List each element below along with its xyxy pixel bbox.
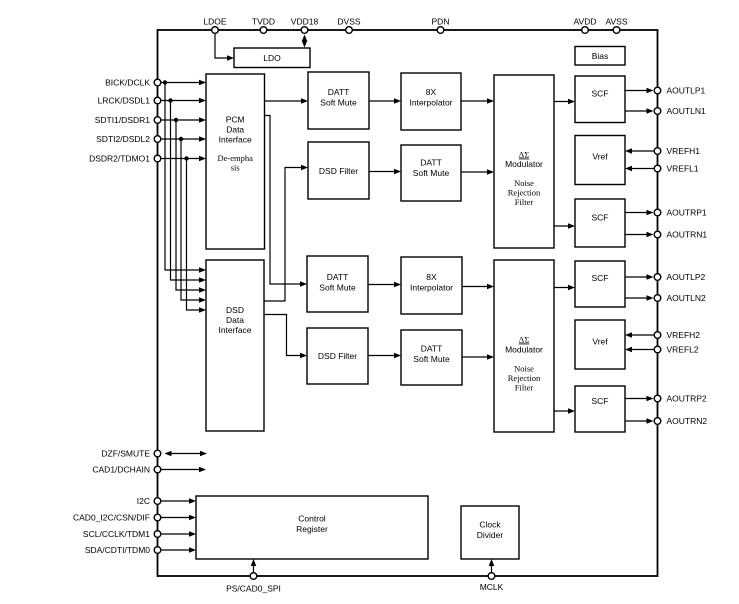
svg-text:DSD Filter: DSD Filter	[318, 351, 357, 361]
svg-text:PDN: PDN	[432, 17, 450, 27]
svg-text:AOUTRN2: AOUTRN2	[667, 416, 708, 426]
svg-text:Interface: Interface	[219, 135, 252, 145]
svg-text:CAD1/DCHAIN: CAD1/DCHAIN	[92, 465, 150, 475]
svg-text:AVDD: AVDD	[574, 17, 597, 27]
svg-text:Interpolator: Interpolator	[410, 98, 453, 108]
svg-text:VREFL1: VREFL1	[667, 164, 699, 174]
svg-text:LRCK/DSDL1: LRCK/DSDL1	[98, 96, 151, 106]
svg-text:AOUTRP2: AOUTRP2	[667, 394, 707, 404]
svg-text:ΔΣ: ΔΣ	[519, 335, 529, 345]
svg-text:I2C: I2C	[137, 496, 150, 506]
svg-text:DATT: DATT	[421, 344, 443, 354]
svg-text:Divider: Divider	[477, 530, 504, 540]
svg-text:MCLK: MCLK	[480, 582, 504, 592]
svg-text:DZF/SMUTE: DZF/SMUTE	[101, 449, 150, 459]
svg-text:SCF: SCF	[592, 273, 609, 283]
svg-text:VREFL2: VREFL2	[667, 345, 699, 355]
svg-text:Data: Data	[226, 125, 244, 135]
svg-text:AOUTRN1: AOUTRN1	[667, 230, 708, 240]
svg-text:PS/CAD0_SPI: PS/CAD0_SPI	[226, 584, 281, 594]
svg-text:Rejection: Rejection	[508, 373, 541, 383]
svg-text:Register: Register	[296, 524, 328, 534]
svg-text:AOUTRP1: AOUTRP1	[667, 208, 707, 218]
svg-text:Interface: Interface	[218, 325, 251, 335]
svg-text:Rejection: Rejection	[508, 187, 541, 197]
svg-text:DATT: DATT	[327, 272, 349, 282]
svg-text:ΔΣ: ΔΣ	[519, 150, 529, 160]
svg-text:SCF: SCF	[592, 396, 609, 406]
svg-text:Soft Mute: Soft Mute	[413, 168, 450, 178]
svg-text:SCL/CCLK/TDM1: SCL/CCLK/TDM1	[83, 529, 150, 539]
svg-text:DSDR2/TDMO1: DSDR2/TDMO1	[89, 154, 150, 164]
svg-text:TVDD: TVDD	[252, 17, 275, 27]
svg-text:VDD18: VDD18	[291, 17, 319, 27]
svg-text:Data: Data	[226, 315, 244, 325]
svg-text:Modulator: Modulator	[505, 159, 543, 169]
svg-text:DATT: DATT	[328, 87, 350, 97]
svg-text:Modulator: Modulator	[505, 344, 543, 354]
svg-text:Vref: Vref	[592, 152, 608, 162]
svg-text:SDA/CDTI/TDM0: SDA/CDTI/TDM0	[85, 545, 150, 555]
svg-text:De-empha: De-empha	[217, 153, 253, 163]
svg-text:Filter: Filter	[515, 197, 534, 207]
svg-text:SDTI2/DSDL2: SDTI2/DSDL2	[96, 134, 150, 144]
svg-text:Control: Control	[298, 514, 326, 524]
svg-text:DSD Filter: DSD Filter	[319, 166, 358, 176]
svg-text:PCM: PCM	[226, 115, 245, 125]
svg-text:Soft Mute: Soft Mute	[413, 354, 450, 364]
svg-text:LDOE: LDOE	[203, 17, 226, 27]
svg-text:AOUTLP2: AOUTLP2	[667, 272, 706, 282]
svg-text:Clock: Clock	[479, 520, 501, 530]
svg-text:Soft Mute: Soft Mute	[320, 98, 357, 108]
svg-text:DATT: DATT	[420, 158, 442, 168]
svg-text:AOUTLN2: AOUTLN2	[667, 293, 706, 303]
svg-text:VREFH1: VREFH1	[667, 146, 701, 156]
svg-text:sis: sis	[231, 163, 240, 173]
svg-text:LDO: LDO	[263, 53, 281, 63]
svg-text:Vref: Vref	[592, 337, 608, 347]
svg-text:DVSS: DVSS	[337, 17, 360, 27]
svg-text:SCF: SCF	[592, 213, 609, 223]
svg-text:SDTI1/DSDR1: SDTI1/DSDR1	[95, 115, 151, 125]
svg-text:DSD: DSD	[226, 305, 244, 315]
svg-text:AOUTLP1: AOUTLP1	[667, 86, 706, 96]
svg-text:8X: 8X	[426, 272, 437, 282]
svg-text:BICK/DCLK: BICK/DCLK	[105, 78, 150, 88]
svg-text:Interpolator: Interpolator	[410, 283, 453, 293]
svg-text:VREFH2: VREFH2	[667, 330, 701, 340]
svg-text:AVSS: AVSS	[605, 17, 627, 27]
svg-text:Bias: Bias	[592, 51, 609, 61]
svg-text:Filter: Filter	[515, 382, 534, 392]
svg-text:Soft Mute: Soft Mute	[319, 283, 356, 293]
svg-text:SCF: SCF	[592, 89, 609, 99]
svg-text:8X: 8X	[426, 87, 437, 97]
svg-text:CAD0_I2C/CSN/DIF: CAD0_I2C/CSN/DIF	[73, 513, 150, 523]
svg-text:AOUTLN1: AOUTLN1	[667, 106, 706, 116]
